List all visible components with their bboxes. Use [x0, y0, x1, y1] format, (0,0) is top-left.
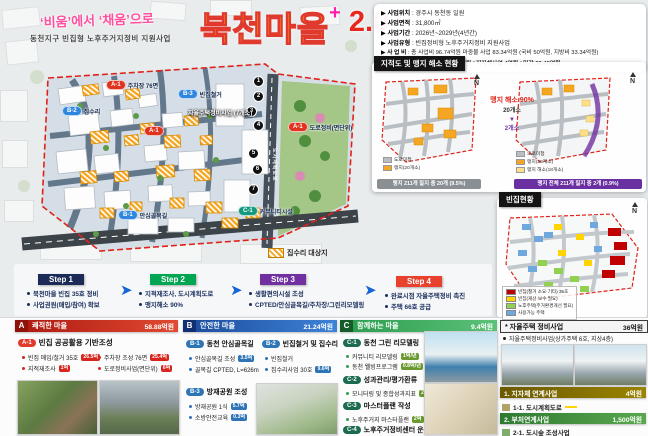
legend-label: 노후주택(주거환경개선 필요): [518, 303, 573, 309]
link-chip-icon: [502, 429, 510, 436]
road-dash-icon: [565, 406, 577, 408]
bullet-text: 빈집철거: [271, 354, 293, 363]
step-1: Step 1 북천마을 빈집 35호 정비 사업권원(매입/참여) 확보: [24, 269, 100, 309]
step3-label: Step 3: [260, 274, 306, 285]
step3-line: 생활편의시설 조성: [246, 289, 364, 298]
budget-badge: 6억: [161, 365, 173, 372]
site-number-7[interactable]: 7: [248, 184, 259, 195]
cadastral-caption-before: 맹지 211개 필지 중 20개 (9.5%): [377, 179, 481, 189]
cadastral-caption-after: 맹지 전체 211개 필지 중 2개 (0.9%): [514, 179, 642, 189]
legend-label: 빈집(개선·보수 필요): [518, 296, 558, 302]
site-number-5[interactable]: 5: [248, 148, 259, 159]
info-value: : 총 사업비 96.74억원 마중물 사업 83.34억원 (국비 50억원,…: [408, 50, 598, 56]
info-value: : 경주시 동천동 일원: [412, 10, 464, 17]
step-arrow-icon: ➤: [364, 281, 377, 299]
site-number-6[interactable]: 6: [252, 164, 263, 175]
poster-title: 북천마을 + 2.0: [200, 2, 389, 51]
step4-label: Step 4: [396, 276, 442, 287]
marker-code: A-1: [144, 126, 164, 136]
bullet-text: 안심골목길 조성: [195, 354, 235, 363]
poster-subtitle: 동천지구 빈집형 노후주거지정비 지원사업: [30, 33, 171, 44]
section-a-budget: 58.88억원: [144, 321, 174, 331]
photo-b-park: [256, 383, 338, 435]
step1-line: 북천마을 빈집 35호 정비: [24, 289, 100, 298]
code-b2: B-2: [262, 340, 280, 348]
info-label: ▶ 사업유형: [381, 40, 410, 47]
c-bullet: 동천 웰빙프로그램0.8억/년: [346, 362, 423, 371]
link-chip-icon: [502, 404, 510, 411]
site-number-1[interactable]: 1: [253, 76, 264, 87]
repair-label: 집수리 대상지: [287, 248, 328, 258]
map-repair-legend: 집수리 대상지: [268, 248, 328, 258]
info-row-location: ▶ 사업위치 : 경주시 동천동 일원: [381, 9, 639, 19]
aged-house-swatch-icon: [506, 303, 516, 309]
step-arrow-icon: ➤: [120, 281, 133, 299]
info-label: ▶ 사 업 비: [381, 50, 406, 56]
section-d-budget: 36억원: [623, 322, 643, 332]
a-bullet: 빈집 매입/철거 35호26.5억: [22, 353, 100, 362]
b-bullet: 소방안전교육0.3억: [189, 413, 247, 422]
b-bullet: 방재공원 1식5.7억: [189, 402, 247, 411]
road-swatch-icon: [383, 157, 392, 163]
legend-label: 맹지(20개소): [394, 164, 420, 171]
info-label: ▶ 사업기간: [381, 30, 410, 37]
bullet-text: 모니터링 및 종합성과지표: [352, 389, 416, 398]
marker-label: 집수리: [84, 107, 101, 116]
section-b-letter: B: [183, 320, 196, 332]
landlock-swatch-icon: [516, 159, 525, 165]
poster-tagline: ‘비움’에서 ‘채움’으로: [40, 8, 154, 31]
step-3: Step 3 생활편의시설 조성 CPTED/안심골목길/주차장/그린리모델링: [246, 269, 364, 309]
bullet-text: 동천 웰빙프로그램: [352, 362, 398, 371]
cadastral-legend-left: 도로미접 맹지(20개소): [383, 156, 420, 172]
photo-a-after: [99, 380, 180, 435]
cadastral-before-illustration: [378, 72, 484, 168]
title-plus-icon: +: [329, 2, 341, 25]
d-bullet: 자율주택정비사업(상가주택 6호, 지상4층): [503, 334, 613, 343]
link1-item-row: 1-1. 도시계획도로: [502, 402, 577, 412]
legend-label: 사용가능 주택: [518, 310, 545, 316]
vacant-repair-swatch-icon: [506, 296, 516, 302]
a-bullet: 주차장 조성 76면25.4억: [98, 353, 169, 362]
map-marker-c1[interactable]: C-1커뮤니티시설: [238, 206, 293, 216]
section-a1-row: A-1 빈집 공공활용 기반조성: [18, 337, 113, 348]
bullet-text: 주차장 조성 76면: [104, 353, 147, 362]
info-label: ▶ 사업위치: [381, 10, 410, 17]
link1-budget: 4억원: [626, 388, 642, 398]
section-b2-row: B-2 빈집철거 및 집수리: [262, 339, 338, 349]
bullet-text: 지적재조사: [28, 364, 56, 373]
vacancy-legend: 빈집(철거 소요·기타) 35호 빈집(개선·보수 필요) 노후주택(주거환경개…: [502, 286, 577, 320]
site-map-illustration: [10, 56, 362, 266]
c-bullet: 커뮤니티 리모델링1억/년: [346, 352, 419, 361]
link1-name: 1. 지자체 연계사업: [504, 388, 557, 398]
photo-c-remodel: [424, 331, 498, 383]
budget-badge: 9.6억: [315, 366, 331, 373]
info-value: : 31,800㎡: [412, 20, 441, 27]
step2-line: 지적재조사, 도시계획도로: [136, 289, 213, 298]
code-c3: C-3: [343, 402, 361, 410]
map-marker-a1-parking[interactable]: A-1주차장 76면: [106, 80, 158, 90]
map-marker-b1[interactable]: B-1안심골목길: [118, 210, 167, 220]
down-arrow-icon: ▼: [484, 116, 540, 125]
budget-badge: 1억/년: [401, 353, 419, 360]
cadastral-map-before: [378, 72, 484, 168]
section-a-title: 쾌적한 마을: [32, 321, 67, 331]
resolved-swatch-icon: [516, 167, 525, 173]
budget-badge: 25.4억: [150, 354, 169, 361]
marker-code: A-1: [288, 122, 308, 132]
step1-line: 사업권원(매입/참여) 확보: [24, 300, 100, 309]
section-b3-row: B-3 방재공원 조성: [186, 387, 247, 397]
vacant-demolish-swatch-icon: [506, 289, 516, 295]
c4-title: 노후주거정비센터 운영: [364, 425, 430, 435]
marker-label: 주차장 76면: [128, 81, 158, 90]
c1-title: 동천 그린 리모델링: [364, 338, 419, 348]
info-label: ▶ 사업면적: [381, 20, 410, 27]
section-d-header: * 자율주택 정비사업 36억원: [500, 320, 648, 333]
step4-line: 주택 66호 공급: [382, 302, 465, 311]
hatch-swatch-icon: [268, 248, 284, 258]
map-road-label: 도시계획도로: [271, 148, 278, 182]
compass-icon: N: [474, 74, 480, 87]
cadastral-highlight: 맹지 해소 90%: [484, 96, 540, 107]
cadastral-to: 2개소: [484, 125, 540, 134]
site-number-4[interactable]: 4: [253, 120, 264, 131]
map-cluster-label: 자율주택정비사업 (7개소): [188, 108, 252, 117]
link2-item-row: 2-1. 도시숲 조성사업: [502, 427, 570, 436]
code-b1: B-1: [186, 340, 204, 348]
step4-line: 완료시점 자율주택정비 촉진: [382, 291, 465, 300]
c3-title: 마스터플랜 작성: [364, 401, 411, 411]
a-bullet: 지적재조사1억: [22, 364, 70, 373]
bullet-text: 빈집 매입/철거 35호: [28, 353, 78, 362]
a1-subtitle: 빈집 공공활용 기반조성: [39, 337, 113, 348]
map-marker-b2[interactable]: B-2집수리: [62, 106, 100, 116]
legend-label: 빈집(철거 소요·기타) 35호: [518, 289, 568, 295]
photo-d-building1: [501, 344, 574, 386]
bullet-text: 도로정비사업(면단위): [104, 364, 158, 373]
section-c1-row: C-1 동천 그린 리모델링: [343, 338, 419, 348]
marker-code: B-3: [178, 89, 198, 99]
step-2: Step 2 지적재조사, 도시계획도로 맹지해소 90%: [136, 269, 213, 309]
c-bullet: 노후주거지 마스터플랜2억: [346, 415, 424, 424]
step1-label: Step 1: [38, 274, 84, 285]
bullet-text: 노후주거지 마스터플랜: [352, 415, 409, 424]
marker-label: 빈집철거: [200, 90, 222, 99]
bg-building: [1, 6, 41, 30]
title-main: 북천마을: [200, 2, 329, 51]
section-a-letter: A: [15, 320, 28, 332]
cadastral-legend-right: 도로미접 맹지(20개소) 맹지 해소(18개소): [516, 150, 563, 174]
link-ministry-bar: 2. 부처연계사업 1,500억원: [500, 413, 646, 424]
map-marker-b3[interactable]: B-3빈집철거: [178, 89, 222, 99]
site-map: A-1주차장 76면 B-3빈집철거 B-2집수리 A-1 A-1도로정비(면단…: [10, 56, 362, 266]
c2-title: 성과관리/평가환류: [364, 375, 417, 385]
b2-title: 빈집철거 및 집수리: [283, 339, 338, 349]
legend-label: 도로미접: [527, 150, 545, 157]
marker-label: 커뮤니티시설: [260, 207, 293, 216]
poster-canvas: ‘비움’에서 ‘채움’으로 동천지구 빈집형 노후주거지정비 지원사업 북천마을…: [0, 0, 648, 436]
legend-label: 맹지(20개소): [527, 158, 553, 165]
photo-c-masterplan: [424, 383, 498, 435]
cadastral-from: 20개소: [484, 107, 540, 116]
budget-badge: 0.3억: [231, 414, 247, 421]
info-row-type: ▶ 사업유형 : 빈집정비형 노후주거지정비 지원사업: [381, 39, 639, 49]
b3-title: 방재공원 조성: [207, 387, 248, 397]
info-value: : 빈집정비형 노후주거지정비 지원사업: [412, 40, 510, 47]
map-marker-a1-center[interactable]: A-1: [144, 126, 166, 136]
section-c-title: 함께하는 마을: [357, 321, 399, 331]
link2-name: 2. 부처연계사업: [504, 414, 549, 424]
b-bullet: 안심골목길 조성3.5억: [189, 354, 254, 363]
marker-code: B-1: [118, 210, 138, 220]
section-c3-row: C-3 마스터플랜 작성: [343, 401, 411, 411]
link-local-gov-bar: 1. 지자체 연계사업 4억원: [500, 387, 646, 398]
marker-label: 안심골목길: [140, 211, 168, 220]
bullet-text: 방재공원 1식: [195, 402, 228, 411]
site-number-2[interactable]: 2: [253, 91, 264, 102]
b-bullet: 빈집철거: [265, 354, 293, 363]
section-b-header: B 안전한 마을21.24억원: [183, 320, 337, 332]
step-arrow-icon: ➤: [230, 281, 243, 299]
step2-line: 맹지해소 90%: [136, 300, 213, 309]
budget-badge: 3.5억: [238, 355, 254, 362]
step3-line: CPTED/안심골목길/주차장/그린리모델링: [246, 300, 364, 309]
info-row-area: ▶ 사업면적 : 31,800㎡: [381, 19, 639, 29]
section-c4-row: C-4 노후주거정비센터 운영: [343, 425, 430, 435]
bullet-text: 커뮤니티 리모델링: [352, 352, 398, 361]
photo-d-building2: [574, 344, 647, 386]
code-c4: C-4: [343, 426, 361, 434]
link2-budget: 1,500억원: [612, 414, 642, 424]
section-c-letter: C: [340, 320, 353, 332]
b1-title: 동천 안심골목길: [207, 339, 254, 349]
vacancy-header-tab: 빈집현황: [499, 192, 541, 207]
b-bullet: 집수리사업 30호9.6억: [265, 365, 331, 374]
info-row-period: ▶ 사업기간 : 2026년~2029년(4년간): [381, 29, 639, 39]
b-bullet: 골목길 CPTED, L=626m: [189, 365, 259, 374]
bullet-text: 자율주택정비사업(상가주택 6호, 지상4층): [509, 334, 613, 343]
section-c2-row: C-2 성과관리/평가환류: [343, 375, 417, 385]
section-b-budget: 21.24억원: [303, 321, 333, 331]
compass-icon: N: [632, 202, 638, 215]
section-a-header: A 쾌적한 마을58.88억원: [15, 320, 178, 332]
code-c2: C-2: [343, 376, 361, 384]
legend-label: 맹지 해소(18개소): [527, 166, 563, 173]
code-b3: B-3: [186, 388, 204, 396]
bg-building: [149, 1, 186, 21]
code-a1: A-1: [18, 339, 36, 347]
code-c1: C-1: [343, 339, 361, 347]
bullet-text: 집수리사업 30호: [271, 365, 312, 374]
cadastral-annotation: 맹지 해소 90% 20개소 ▼ 2개소: [484, 96, 540, 134]
marker-code: C-1: [238, 206, 258, 216]
budget-badge: 0.8억/년: [401, 363, 423, 370]
road-swatch-icon: [516, 151, 525, 157]
a-bullet: 도로정비사업(면단위)6억: [98, 364, 172, 373]
photo-a-before: [17, 380, 98, 435]
map-marker-a1-road[interactable]: A-1도로정비(면단위): [288, 122, 352, 132]
section-c-budget: 9.4억원: [471, 321, 493, 331]
link1-item: 1-1. 도시계획도로: [513, 402, 562, 412]
section-b-title: 안전한 마을: [200, 321, 235, 331]
usable-house-swatch-icon: [506, 310, 516, 316]
budget-badge: 5.7억: [231, 403, 247, 410]
step-4: Step 4 완료시점 자율주택정비 촉진 주택 66호 공급: [382, 271, 465, 311]
section-b1-row: B-1 동천 안심골목길: [186, 339, 254, 349]
step2-label: Step 2: [150, 274, 196, 285]
section-d-title: * 자율주택 정비사업: [505, 322, 563, 332]
bullet-text: 골목길 CPTED, L=626m: [195, 365, 259, 374]
marker-label: 도로정비(면단위): [310, 123, 353, 132]
info-value: : 2026년~2029년(4년간): [412, 30, 477, 37]
marker-code: A-1: [106, 80, 126, 90]
bullet-text: 소방안전교육: [195, 413, 228, 422]
compass-icon: N: [630, 72, 636, 85]
landlock-swatch-icon: [383, 165, 392, 171]
budget-badge: 1억: [59, 365, 71, 372]
link2-item: 2-1. 도시숲 조성사업: [513, 427, 570, 436]
marker-code: B-2: [62, 106, 82, 116]
legend-label: 도로미접: [394, 156, 412, 163]
c-bullet: 모니터링 및 종합성과지표2.8억: [346, 389, 435, 398]
budget-badge: 2억: [412, 416, 424, 423]
cadastral-header-tab: 지적도 및 맹지 해소 현황: [374, 56, 465, 71]
